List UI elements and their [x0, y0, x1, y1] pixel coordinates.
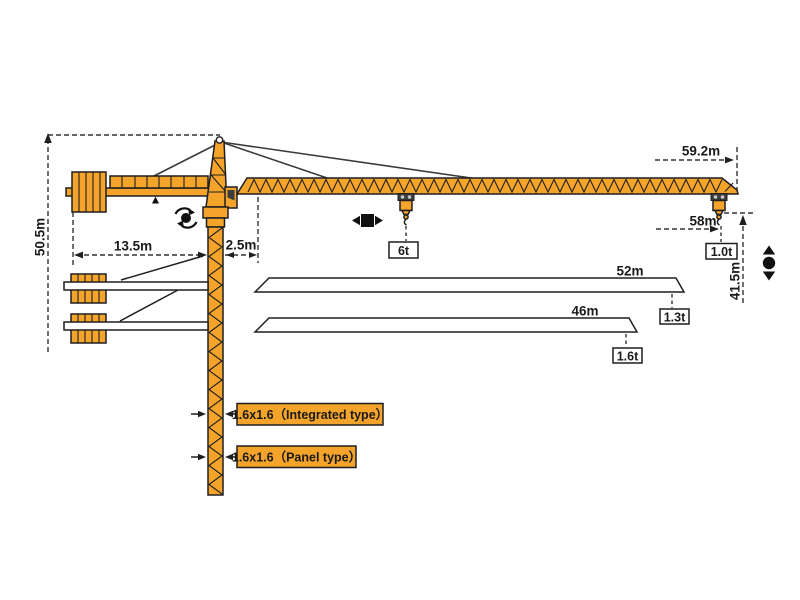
turntable: [203, 207, 228, 218]
jib-52m-label: 52m: [616, 264, 643, 279]
tip-load-52m-label: 1.3t: [664, 310, 686, 324]
tower-mast: [208, 227, 223, 495]
hook-block: [400, 201, 412, 211]
apex-structure: [206, 141, 227, 207]
hook-block-taper: [715, 211, 723, 215]
trolley-carriage: [398, 194, 414, 201]
tie-rods: [152, 142, 485, 180]
hook-travel-dot: [763, 257, 775, 269]
counter-jib: [66, 172, 212, 212]
leader-line: [120, 290, 178, 321]
integrated-type-label: 1.6x1.6（Integrated type）: [232, 407, 388, 422]
hook-block-taper: [402, 211, 410, 215]
trolley-mid: 6t: [389, 194, 418, 259]
down-arrow: [763, 272, 775, 281]
jib-option-52m: 52m 1.3t: [255, 264, 689, 325]
jib-52m-outline: [255, 278, 684, 292]
leader-line: [121, 256, 203, 280]
trolley-wheel: [721, 195, 725, 199]
jib-46m-label: 46m: [571, 304, 598, 319]
arrow-left: [74, 252, 83, 259]
total-height-label: 50.5m: [33, 218, 48, 256]
counterjib-bar: [64, 282, 208, 290]
counterweight-block: [72, 172, 106, 212]
slewing-unit: [207, 218, 225, 227]
arrow-left: [226, 252, 234, 258]
slew-rotation-icon: [176, 208, 197, 228]
apex-pin: [216, 137, 222, 143]
arrow-right: [198, 411, 206, 417]
trolley-wheel: [714, 195, 718, 199]
trolley-wheel: [401, 195, 405, 199]
trolley-travel-square: [361, 214, 374, 227]
hook-travel-icon: [763, 246, 775, 281]
counterjib-bar: [64, 322, 208, 330]
main-jib: [237, 178, 738, 194]
jib-option-46m: 46m 1.6t: [255, 304, 642, 364]
hook: [717, 219, 719, 225]
slew-arc: [182, 222, 197, 228]
hook-radius-label: 58m: [689, 214, 716, 229]
hook-eye: [404, 215, 408, 219]
trolley-wheel: [408, 195, 412, 199]
tip-load-46m-label: 1.6t: [617, 349, 639, 363]
mast-to-pivot-label: 2.5m: [226, 238, 257, 253]
diagram-canvas: 50.5m 13.5m 2.5m 59.2m 58m 41.5m: [0, 0, 800, 600]
hook-eye: [717, 215, 721, 219]
tower-crane-diagram: 50.5m 13.5m 2.5m 59.2m 58m 41.5m: [0, 0, 800, 600]
arrow-right: [249, 252, 257, 258]
trolley-travel-icon: [352, 214, 383, 227]
slew-arrowhead: [188, 208, 195, 215]
arrow-right: [725, 157, 734, 164]
hook-block: [713, 201, 725, 211]
trolley-carriage: [711, 194, 727, 201]
max-radius-label: 59.2m: [682, 144, 720, 159]
up-arrow: [763, 246, 775, 255]
hook: [404, 219, 406, 225]
panel-type-label: 1.6x1.6（Panel type）: [232, 449, 361, 464]
slew-arc: [176, 208, 191, 214]
up-arrow-marker: [152, 197, 159, 204]
counterjib-option-1: [64, 256, 208, 303]
left-arrow: [352, 216, 360, 225]
jib-46m-outline: [255, 318, 637, 332]
arrow-right: [198, 454, 206, 460]
tip-load-59m-label: 1.0t: [711, 245, 733, 259]
slew-arrowhead: [177, 221, 184, 228]
arrow-up: [739, 215, 746, 225]
right-arrow: [375, 216, 383, 225]
jib-tie-rod-2: [221, 142, 485, 180]
hook-height-label: 41.5m: [728, 262, 743, 300]
jib-tie-rod-1: [221, 142, 330, 179]
counterjib-length-label: 13.5m: [114, 239, 152, 254]
max-load-label: 6t: [398, 244, 410, 258]
